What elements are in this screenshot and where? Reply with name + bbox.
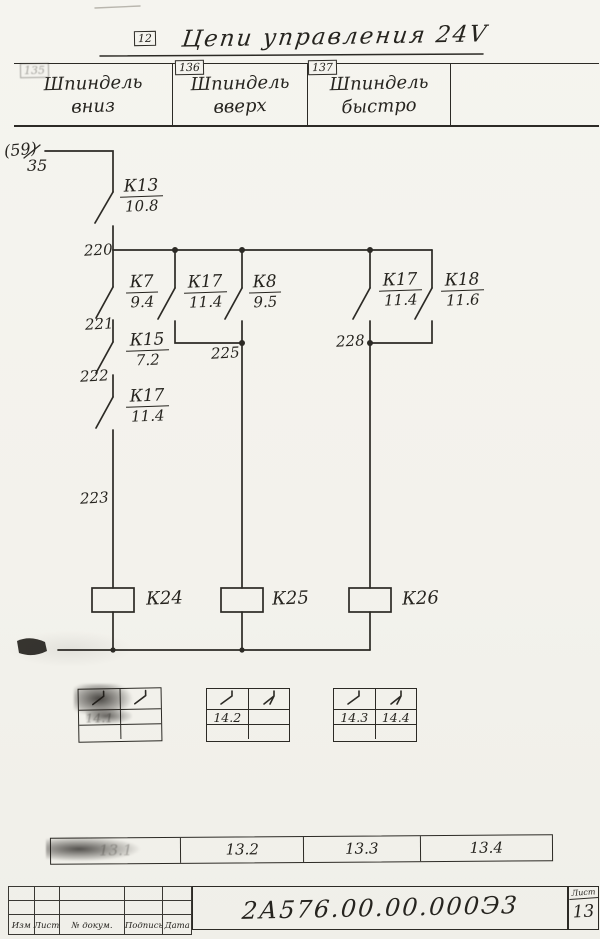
title-underline	[100, 54, 483, 56]
header-table: Шпиндель вниз Шпиндель вверх Шпиндель бы…	[14, 63, 599, 127]
contact-ref-cell: 14.3	[334, 710, 375, 724]
contact-label-k18: К18 11.6	[440, 269, 484, 309]
schematic-sheet: 12 Цепи управления 24V Шпиндель вниз Шпи…	[0, 0, 600, 939]
contact-table-refs-row: 14.3 14.4	[334, 710, 416, 725]
contact-table-k26: 14.3 14.4	[333, 688, 417, 742]
contact-symbol-icon	[119, 688, 161, 709]
coil-label-k24: К24	[146, 587, 184, 609]
contact-symbol-icon	[375, 689, 417, 709]
sheet-ref-cell: 13.1	[51, 838, 181, 864]
contact-table-empty-row	[79, 724, 161, 739]
contact-table-symbols-row	[334, 689, 416, 710]
revision-col-podpis: Подпись	[124, 887, 162, 934]
contact-ref-cell	[248, 710, 290, 724]
contact-ref-cell	[79, 725, 120, 740]
wire-k18-out	[370, 321, 432, 343]
revision-col-list: Лист	[34, 887, 59, 934]
doc-number-box: 2А576.00.00.000Э3	[192, 886, 568, 930]
column-tag-136: 136	[175, 60, 204, 76]
revision-col-izm: Изм	[9, 887, 34, 934]
contact-ref-cell	[248, 725, 290, 739]
wire-source-lead	[45, 151, 113, 192]
relay-name: К7	[125, 272, 158, 293]
sheet-ref-cell: 13.2	[180, 837, 303, 863]
relay-name: К15	[125, 330, 168, 351]
contact-label-k15: К15 7.2	[125, 329, 169, 369]
coil-k26-box	[349, 588, 391, 612]
contact-symbol-icon	[248, 689, 290, 709]
header-cell-empty	[450, 64, 599, 125]
sheet-number: 13	[568, 898, 598, 925]
wire-number-222: 222	[80, 366, 110, 385]
contact-ref-cell	[207, 725, 248, 739]
relay-ref: 11.4	[126, 406, 169, 425]
contact-table-empty-row	[207, 725, 289, 739]
top-edge-mark	[95, 6, 140, 8]
relay-name: К17	[183, 272, 226, 293]
wire-number-223: 223	[80, 488, 110, 507]
contact-k17b-slash	[353, 288, 370, 319]
revision-col-data: Дата	[162, 887, 191, 934]
circuit-wiring	[0, 0, 600, 939]
relay-ref: 11.4	[184, 292, 227, 311]
revision-grid: Изм Лист № докум. Подпись Дата	[8, 886, 192, 935]
relay-ref: 11.4	[379, 290, 422, 309]
wire-number-225: 225	[211, 343, 241, 362]
contact-k17a-slash	[158, 288, 175, 319]
coil-k24-box	[92, 588, 134, 612]
title-block: Изм Лист № докум. Подпись Дата 2А576.00.…	[8, 884, 599, 938]
contact-label-k17a: К17 11.4	[183, 271, 227, 311]
contact-table-refs-row: 14.2	[207, 710, 289, 725]
sheet-ref-strip: 13.1 13.2 13.3 13.4	[50, 834, 553, 865]
contact-ref-cell: 14.1	[79, 710, 120, 725]
revision-grid-line	[8, 914, 192, 915]
contact-table-symbols-row	[79, 688, 161, 710]
relay-name: К13	[119, 176, 162, 197]
relay-name: К17	[125, 386, 168, 407]
header-cell-line2: вверх	[173, 94, 308, 120]
doc-number: 2А576.00.00.000Э3	[241, 891, 520, 925]
ink-blob-bus-left	[17, 638, 47, 655]
wire-k17a-out	[175, 321, 242, 343]
contact-label-k17c: К17 11.4	[125, 385, 169, 425]
source-wire-number: 35	[27, 156, 47, 175]
zone-tag: 12	[134, 31, 156, 46]
coil-label-k25: К25	[272, 587, 310, 609]
contact-table-k25: 14.2	[206, 688, 290, 742]
contact-ref-cell	[119, 709, 161, 724]
contact-label-k17b: К17 11.4	[378, 269, 422, 309]
contact-table-empty-row	[334, 725, 416, 739]
contact-label-k7: К7 9.4	[125, 271, 158, 311]
contact-k13-slash	[95, 192, 113, 223]
wire-number-220: 220	[84, 240, 114, 259]
relay-ref: 9.4	[126, 292, 159, 311]
contact-ref-cell	[334, 725, 375, 739]
contact-k17c-slash	[96, 397, 113, 428]
revision-col-docnum: № докум.	[59, 887, 125, 934]
contact-ref-cell: 14.2	[207, 710, 248, 724]
relay-name: К8	[248, 272, 281, 293]
contact-table-refs-row: 14.1	[79, 709, 161, 725]
contact-symbol-icon	[207, 689, 248, 709]
header-cell-line2: вниз	[14, 93, 173, 120]
column-tag-137: 137	[308, 60, 337, 76]
relay-ref: 11.6	[441, 290, 484, 309]
revision-grid-line	[8, 900, 192, 901]
contact-ref-cell: 14.4	[375, 710, 417, 724]
relay-ref: 7.2	[126, 350, 169, 369]
coil-label-k26: К26	[402, 587, 440, 609]
relay-ref: 10.8	[120, 196, 163, 215]
relay-name: К17	[378, 270, 421, 291]
contact-table-k24: 14.1	[78, 687, 163, 742]
sheet-ref-cell: 13.4	[419, 835, 552, 861]
relay-ref: 9.5	[249, 292, 282, 311]
contact-table-symbols-row	[207, 689, 289, 710]
contact-symbol-icon	[79, 689, 120, 710]
contact-label-k13: К13 10.8	[119, 175, 163, 215]
wire-number-228: 228	[336, 331, 366, 350]
sheet-ref-cell: 13.3	[303, 836, 420, 862]
column-tag-135: 135	[20, 63, 49, 79]
relay-name: К18	[440, 270, 483, 291]
contact-k7-slash	[96, 287, 113, 318]
contact-label-k8: К8 9.5	[248, 271, 281, 311]
contact-symbol-icon	[334, 689, 375, 709]
header-cell-line2: быстро	[308, 94, 451, 120]
wire-number-221: 221	[85, 314, 115, 333]
contact-k8-slash	[225, 288, 242, 319]
coil-k25-box	[221, 588, 263, 612]
contact-ref-cell	[120, 724, 162, 739]
sheet-number-box: Лист 13	[568, 886, 599, 930]
contact-ref-cell	[375, 725, 417, 739]
